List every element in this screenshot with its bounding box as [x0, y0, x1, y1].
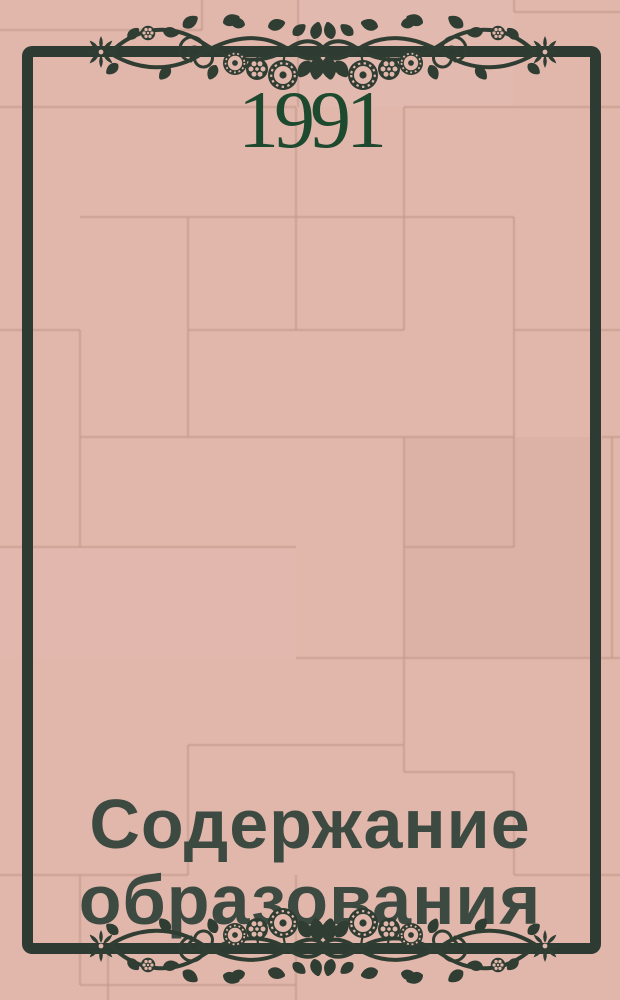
floral-ornament-bottom-icon [88, 905, 558, 989]
floral-ornament-top-icon [88, 9, 558, 93]
book-cover: 1991 Содержание образования [0, 0, 620, 1000]
title-line-1: Содержание [0, 786, 620, 862]
